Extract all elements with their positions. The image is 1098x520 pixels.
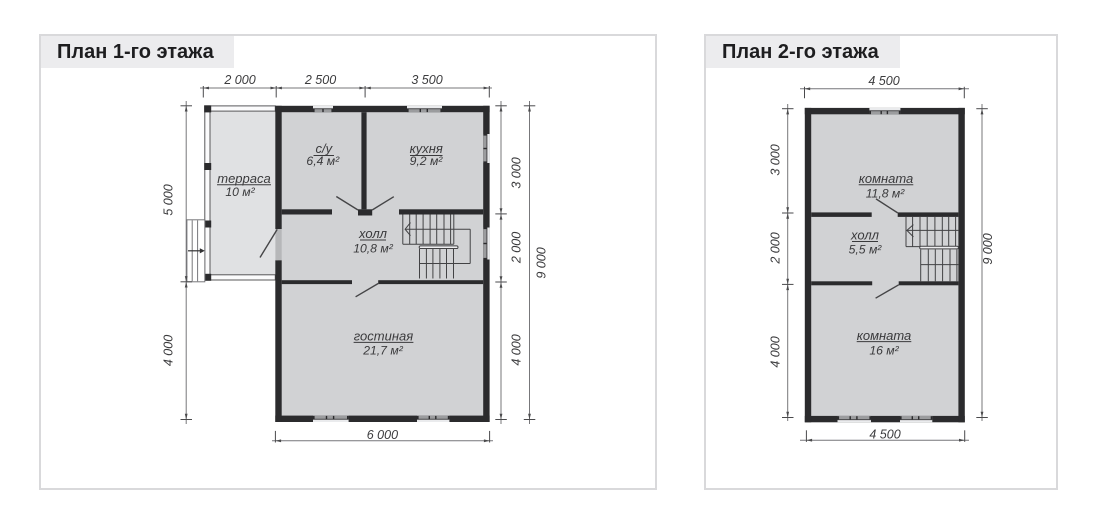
svg-text:4 000: 4 000 [768, 336, 782, 367]
svg-text:10 м²: 10 м² [225, 185, 255, 199]
svg-text:5,5 м²: 5,5 м² [849, 243, 883, 257]
svg-text:11,8 м²: 11,8 м² [866, 187, 906, 201]
svg-text:4 000: 4 000 [161, 335, 175, 366]
svg-text:2 500: 2 500 [304, 73, 336, 87]
svg-text:холл: холл [358, 226, 388, 241]
svg-text:4 500: 4 500 [868, 74, 899, 88]
svg-text:16 м²: 16 м² [869, 344, 899, 358]
svg-text:комната: комната [859, 171, 914, 186]
svg-text:холл: холл [850, 228, 880, 243]
svg-text:2 000: 2 000 [509, 232, 523, 264]
svg-text:3 000: 3 000 [768, 144, 782, 175]
svg-text:терраса: терраса [217, 171, 270, 186]
svg-text:4 000: 4 000 [509, 334, 523, 365]
svg-text:гостиная: гостиная [354, 329, 413, 344]
svg-text:2 000: 2 000 [223, 73, 255, 87]
svg-text:21,7 м²: 21,7 м² [362, 344, 403, 358]
svg-text:9 000: 9 000 [981, 233, 995, 264]
svg-text:6 000: 6 000 [367, 428, 398, 442]
svg-text:9,2 м²: 9,2 м² [410, 154, 444, 168]
svg-text:10,8 м²: 10,8 м² [353, 242, 393, 256]
svg-text:9 000: 9 000 [534, 247, 548, 278]
svg-text:6,4 м²: 6,4 м² [306, 154, 340, 168]
svg-text:4 500: 4 500 [869, 427, 900, 441]
svg-text:3 000: 3 000 [509, 157, 523, 188]
svg-text:комната: комната [857, 328, 912, 343]
svg-text:3 500: 3 500 [411, 73, 442, 87]
svg-text:2 000: 2 000 [768, 232, 782, 264]
svg-text:5 000: 5 000 [161, 184, 175, 215]
